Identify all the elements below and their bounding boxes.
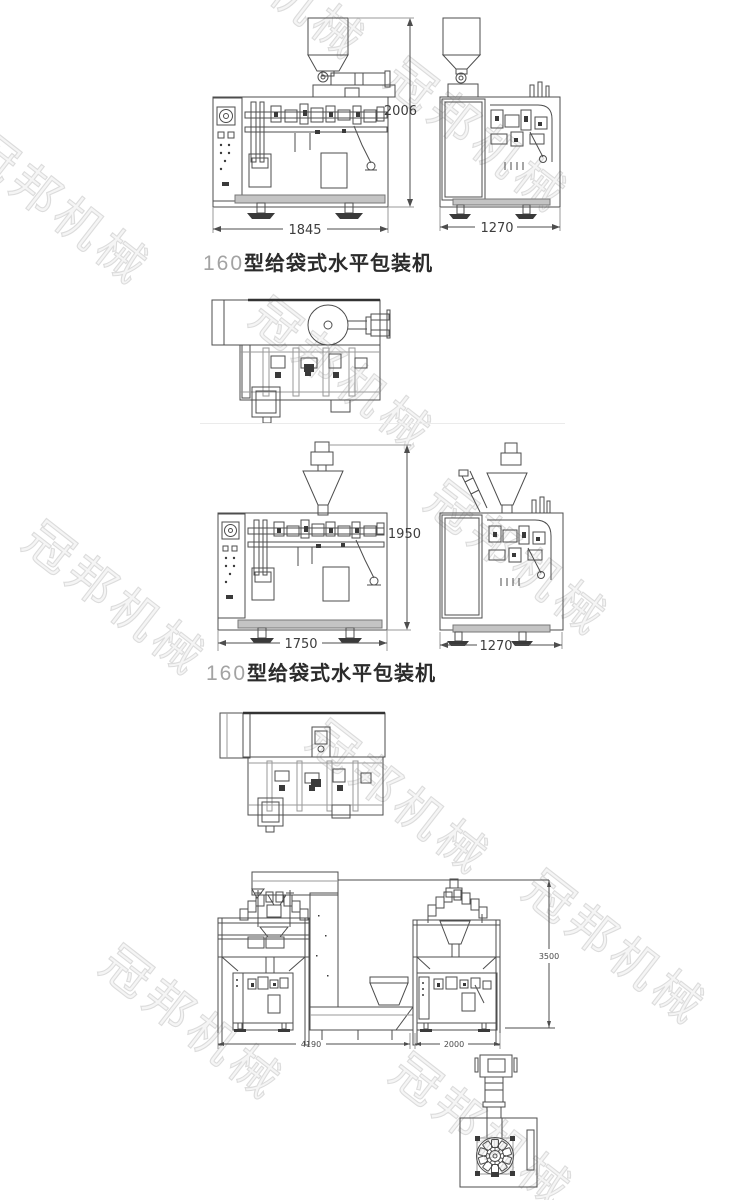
dim-machine-width-label: 2000 — [444, 1040, 464, 1049]
dim-width-label: 1270 — [479, 639, 512, 654]
machinery-deck — [240, 345, 380, 412]
machinery-deck — [248, 757, 383, 818]
internal-machinery — [245, 102, 387, 188]
machine2-name: 型给袋式水平包装机 — [247, 663, 436, 685]
machine2-model-number: 160 — [206, 662, 247, 685]
dimension-machine-width: 2000 — [415, 1033, 500, 1049]
machine2-front-view-drawing: 1950 1750 — [210, 440, 425, 652]
machine-body — [213, 97, 388, 219]
dim-total-height-label: 3500 — [539, 952, 559, 961]
auger-filler — [303, 442, 343, 515]
multihead-weigher-left — [240, 890, 308, 973]
machine1-front-view-drawing: 2006 1845 — [205, 12, 430, 244]
machine-body — [440, 82, 560, 219]
dim-width-label: 1750 — [284, 637, 317, 652]
rotary-table — [475, 1136, 515, 1177]
elevator-top — [475, 1055, 517, 1077]
control-panel — [218, 514, 245, 618]
packaging-machine-right — [417, 973, 497, 1032]
hopper — [308, 18, 395, 97]
dimension-width: 1270 — [440, 207, 560, 236]
dim-width-label: 1845 — [288, 223, 321, 238]
packaging-machine-left — [233, 973, 293, 1032]
internal-machinery — [248, 520, 384, 601]
dim-total-width-label: 4190 — [301, 1040, 321, 1049]
dimension-total-width: 4190 — [218, 1033, 410, 1049]
watermark-text: 冠邦机械 — [11, 502, 224, 690]
machine-body — [218, 513, 387, 643]
dim-width-label: 1270 — [480, 221, 513, 236]
watermark-text: 冠邦机械 — [0, 111, 169, 299]
production-line-layout-drawing: 4190 — [210, 865, 575, 1057]
machine1-caption: 160型给袋式水平包装机 — [203, 253, 433, 275]
dim-height-label: 1950 — [388, 527, 421, 542]
machine-body — [440, 497, 563, 646]
page-root: 冠邦机械 冠邦机械 冠邦机械 冠邦机械 冠邦机械 冠邦机械 冠邦机械 冠邦机械 … — [0, 0, 750, 1200]
machine2-caption: 160型给袋式水平包装机 — [206, 663, 436, 685]
machine1-side-view-drawing: 1270 — [435, 12, 565, 244]
machine2-top-view-drawing — [215, 705, 390, 835]
machine1-top-view-drawing — [205, 288, 390, 428]
dimension-width: 1750 — [218, 630, 387, 652]
dimension-width: 1845 — [213, 207, 388, 238]
machine1-model-number: 160 — [203, 252, 244, 275]
control-panel — [213, 98, 242, 201]
top-table — [212, 300, 390, 345]
hopper — [443, 18, 480, 97]
multihead-weigher-right — [428, 879, 487, 957]
machine2-side-view-drawing: 1270 — [435, 440, 570, 652]
feed-shaft — [483, 1077, 505, 1118]
machine1-name: 型给袋式水平包装机 — [244, 253, 433, 275]
auger-filler — [459, 443, 527, 513]
top-table — [220, 713, 385, 758]
dim-height-label: 2006 — [384, 104, 417, 119]
section-divider — [200, 423, 565, 424]
rotary-machine-top-view-drawing — [455, 1050, 550, 1195]
